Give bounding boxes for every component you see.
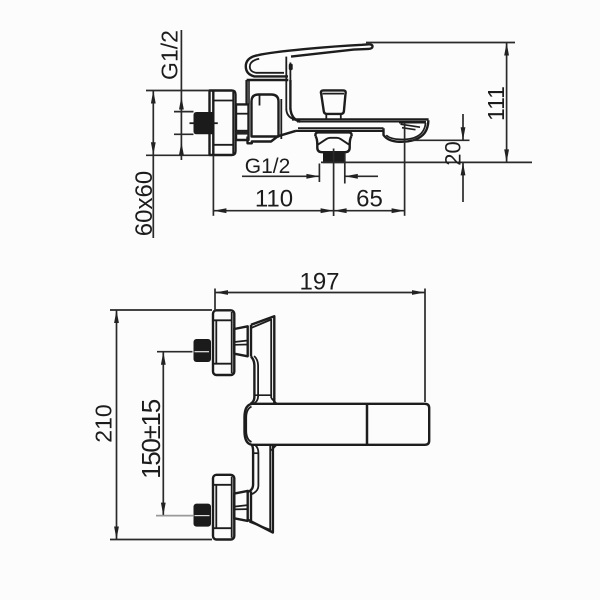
svg-text:G1/2: G1/2 — [245, 155, 291, 178]
svg-text:20: 20 — [441, 141, 466, 165]
svg-text:197: 197 — [299, 269, 339, 296]
svg-text:111: 111 — [483, 86, 509, 121]
svg-text:110: 110 — [255, 186, 293, 213]
svg-text:210: 210 — [91, 404, 117, 442]
svg-text:G1/2: G1/2 — [157, 30, 183, 80]
svg-text:60x60: 60x60 — [131, 171, 158, 236]
svg-text:65: 65 — [356, 186, 383, 213]
svg-text:150±15: 150±15 — [136, 399, 166, 479]
